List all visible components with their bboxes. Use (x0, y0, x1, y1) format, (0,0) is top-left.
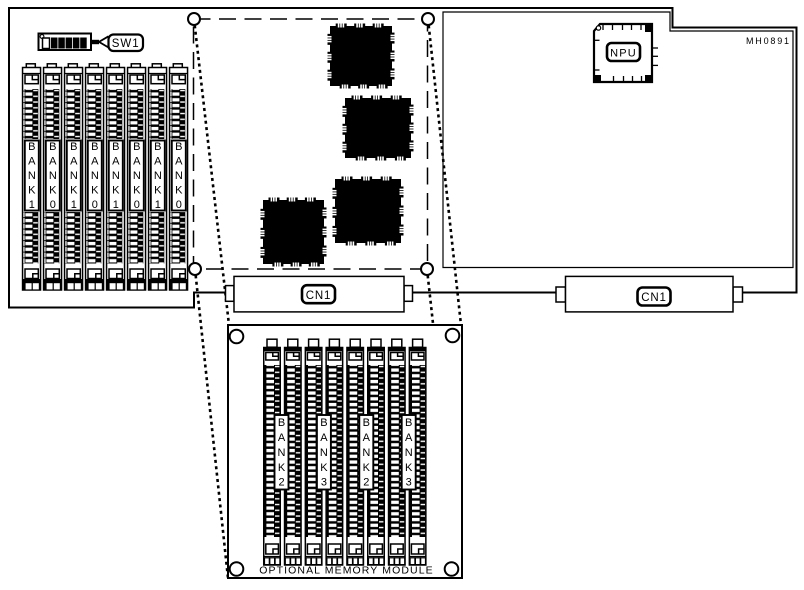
svg-text:OPTIONAL MEMORY MODULE: OPTIONAL MEMORY MODULE (259, 565, 434, 577)
svg-text:K: K (91, 185, 99, 197)
svg-text:CN1: CN1 (306, 290, 331, 302)
svg-text:NPU: NPU (610, 48, 637, 60)
svg-text:A: A (363, 432, 371, 444)
svg-text:A: A (70, 156, 78, 168)
svg-text:N: N (70, 170, 78, 182)
svg-text:N: N (175, 170, 183, 182)
svg-text:N: N (91, 170, 99, 182)
svg-text:SW1: SW1 (112, 38, 140, 50)
svg-text:A: A (175, 156, 183, 168)
svg-text:0: 0 (176, 199, 182, 211)
svg-text:B: B (363, 417, 370, 429)
svg-text:0: 0 (134, 199, 140, 211)
svg-text:K: K (405, 462, 413, 474)
svg-text:K: K (363, 462, 371, 474)
svg-text:1: 1 (113, 199, 119, 211)
svg-text:K: K (133, 185, 141, 197)
svg-text:B: B (91, 141, 98, 153)
svg-text:A: A (154, 156, 162, 168)
svg-text:3: 3 (321, 476, 327, 488)
svg-text:K: K (70, 185, 78, 197)
svg-text:B: B (154, 141, 161, 153)
svg-text:MH0891: MH0891 (746, 36, 791, 46)
svg-text:K: K (154, 185, 162, 197)
svg-text:K: K (175, 185, 183, 197)
svg-text:B: B (70, 141, 77, 153)
svg-text:3: 3 (406, 476, 412, 488)
svg-text:K: K (28, 185, 36, 197)
svg-text:B: B (112, 141, 119, 153)
svg-text:B: B (49, 141, 56, 153)
svg-text:1: 1 (71, 199, 77, 211)
svg-text:1: 1 (29, 199, 35, 211)
svg-text:K: K (49, 185, 57, 197)
svg-text:B: B (278, 417, 285, 429)
svg-text:N: N (28, 170, 36, 182)
svg-text:K: K (320, 462, 328, 474)
svg-text:B: B (320, 417, 327, 429)
svg-text:2: 2 (363, 476, 369, 488)
svg-text:A: A (133, 156, 141, 168)
svg-text:B: B (405, 417, 412, 429)
svg-text:N: N (112, 170, 120, 182)
svg-text:A: A (112, 156, 120, 168)
svg-text:A: A (28, 156, 36, 168)
svg-text:CN1: CN1 (641, 292, 666, 304)
svg-text:N: N (362, 447, 370, 459)
svg-text:0: 0 (50, 199, 56, 211)
svg-text:0: 0 (92, 199, 98, 211)
svg-text:A: A (49, 156, 57, 168)
svg-text:N: N (278, 447, 286, 459)
svg-text:1: 1 (155, 199, 161, 211)
svg-text:N: N (405, 447, 413, 459)
svg-text:N: N (154, 170, 162, 182)
svg-text:N: N (133, 170, 141, 182)
svg-text:A: A (278, 432, 286, 444)
svg-text:K: K (278, 462, 286, 474)
svg-text:A: A (405, 432, 413, 444)
svg-text:2: 2 (278, 476, 284, 488)
svg-text:B: B (28, 141, 35, 153)
svg-text:K: K (112, 185, 120, 197)
svg-text:A: A (320, 432, 328, 444)
svg-text:N: N (49, 170, 57, 182)
svg-text:B: B (133, 141, 140, 153)
svg-text:N: N (320, 447, 328, 459)
svg-text:A: A (91, 156, 99, 168)
svg-text:B: B (175, 141, 182, 153)
